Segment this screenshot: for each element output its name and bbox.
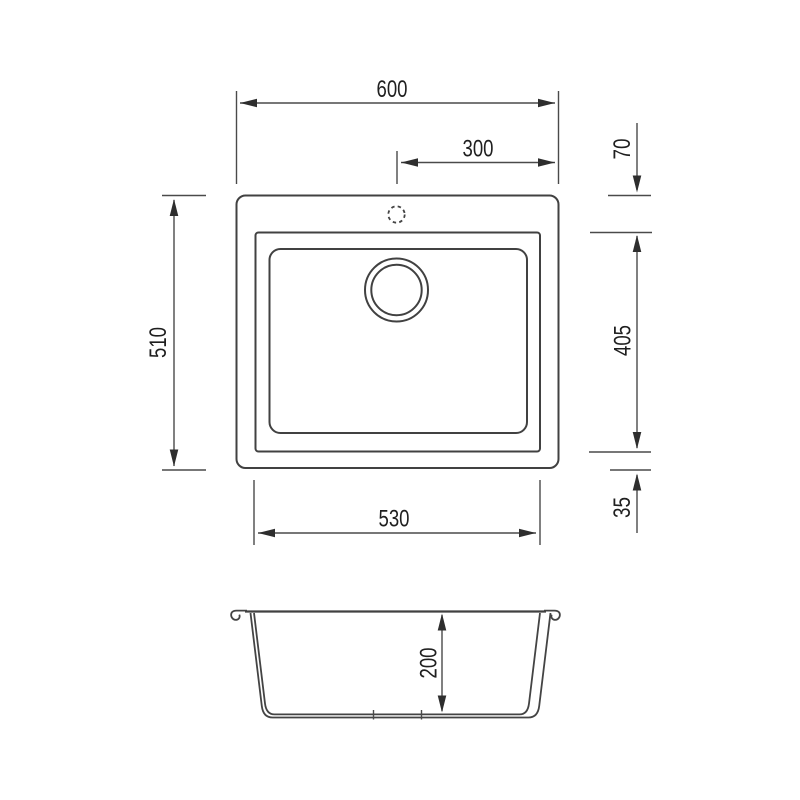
arrowhead-right [538, 99, 555, 108]
arrowhead-right [519, 529, 536, 538]
rim-right-hook [544, 611, 560, 620]
dim-rim-top-gap: 70 [590, 123, 652, 233]
arrowhead-down [633, 176, 642, 193]
drain-inner-ring [371, 265, 421, 315]
bowl-inner-surface [254, 613, 540, 714]
bowl-outer-surface [251, 613, 551, 718]
dim-label-rim-top-gap: 70 [609, 139, 636, 160]
technical-drawing-page: 600 300 70 405 35 510 [0, 0, 800, 800]
arrowhead-up [633, 235, 642, 252]
sink-dimension-drawing: 600 300 70 405 35 510 [0, 0, 800, 800]
side-view [231, 611, 560, 720]
arrowhead-left [258, 529, 275, 538]
arrowhead-up [633, 474, 642, 491]
dim-bowl-length: 405 [589, 235, 651, 452]
arrowhead-up [438, 614, 447, 631]
dim-overall-depth: 510 [145, 196, 206, 471]
arrowhead-left [240, 99, 257, 108]
arrowhead-down [438, 696, 447, 713]
dim-bowl-width: 530 [254, 480, 540, 545]
bowl-bottom-edge [270, 249, 528, 433]
arrowhead-left [401, 158, 418, 167]
tap-hole [388, 206, 404, 222]
dim-label-bowl-length: 405 [610, 325, 637, 356]
arrowhead-right [538, 158, 555, 167]
dim-label-tap-hole-offset: 300 [463, 136, 494, 163]
rim-left-hook [231, 611, 247, 620]
dim-label-overall-width: 600 [377, 76, 408, 103]
arrowhead-up [170, 199, 179, 216]
arrowhead-down [633, 432, 642, 449]
dim-rim-bottom-gap: 35 [609, 470, 651, 533]
dim-tap-hole-offset: 300 [397, 136, 555, 185]
dim-label-bowl-depth: 200 [416, 648, 443, 679]
top-view [237, 196, 559, 469]
arrowhead-down [170, 450, 179, 467]
dim-label-bowl-width: 530 [379, 506, 410, 533]
dim-bowl-depth: 200 [416, 614, 447, 713]
dim-label-overall-depth: 510 [145, 327, 172, 358]
sink-outer-edge [237, 196, 559, 469]
dim-label-rim-bottom-gap: 35 [609, 497, 636, 518]
drain-outer-ring [365, 259, 428, 322]
